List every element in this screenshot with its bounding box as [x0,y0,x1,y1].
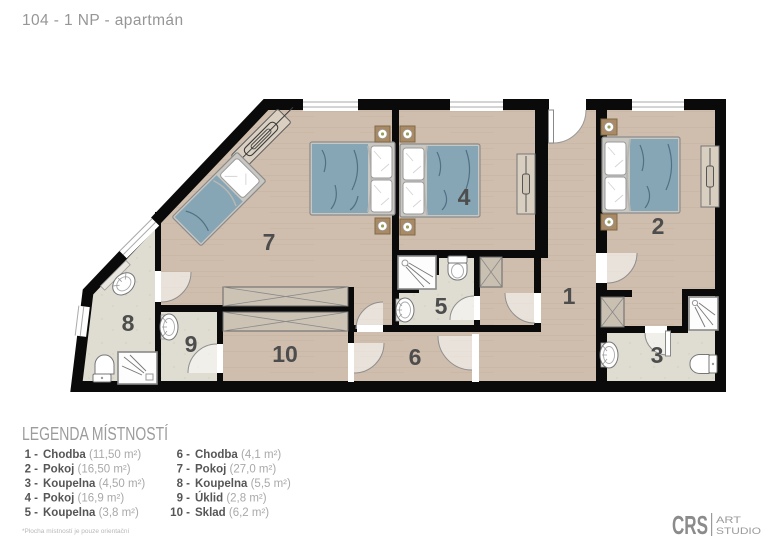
svg-text:4: 4 [458,184,471,210]
svg-text:1 -: 1 - [25,449,39,461]
svg-text:8 -: 8 - [177,478,191,490]
svg-text:5: 5 [435,293,448,319]
svg-text:Koupelna (4,50 m²): Koupelna (4,50 m²) [43,478,145,490]
svg-text:6: 6 [409,344,422,370]
svg-text:ART: ART [716,515,742,525]
svg-text:Pokoj (16,9 m²): Pokoj (16,9 m²) [43,493,124,505]
svg-text:2: 2 [652,213,665,239]
svg-text:104 - 1 NP - apartmán: 104 - 1 NP - apartmán [22,12,183,29]
svg-text:2 -: 2 - [25,464,39,476]
svg-text:LEGENDA MÍSTNOSTÍ: LEGENDA MÍSTNOSTÍ [22,424,168,444]
svg-text:5 -: 5 - [25,507,39,519]
svg-text:STUDIO: STUDIO [716,526,761,536]
svg-text:Pokoj (27,0 m²): Pokoj (27,0 m²) [195,464,276,476]
svg-text:CRS: CRS [672,510,708,540]
svg-text:6 -: 6 - [177,449,191,461]
svg-text:*Plocha místností je pouze ori: *Plocha místností je pouze orientační [22,528,130,535]
svg-text:9 -: 9 - [177,493,191,505]
svg-text:3: 3 [651,342,664,368]
svg-text:7 -: 7 - [177,464,191,476]
svg-text:Pokoj (16,50 m²): Pokoj (16,50 m²) [43,464,131,476]
svg-text:8: 8 [122,310,135,336]
svg-text:3 -: 3 - [25,478,39,490]
svg-text:10 -: 10 - [170,507,190,519]
svg-text:Chodba (4,1 m²): Chodba (4,1 m²) [195,449,281,461]
svg-text:Úklid (2,8 m²): Úklid (2,8 m²) [195,492,267,505]
svg-text:7: 7 [263,229,276,255]
svg-text:Koupelna (3,8 m²): Koupelna (3,8 m²) [43,507,139,519]
svg-text:Chodba (11,50 m²): Chodba (11,50 m²) [43,449,141,461]
svg-text:1: 1 [563,283,576,309]
svg-text:4 -: 4 - [25,493,39,505]
svg-text:Sklad (6,2 m²): Sklad (6,2 m²) [195,507,269,519]
svg-text:Koupelna (5,5 m²): Koupelna (5,5 m²) [195,478,291,490]
svg-text:10: 10 [272,341,298,367]
svg-text:9: 9 [185,331,198,357]
